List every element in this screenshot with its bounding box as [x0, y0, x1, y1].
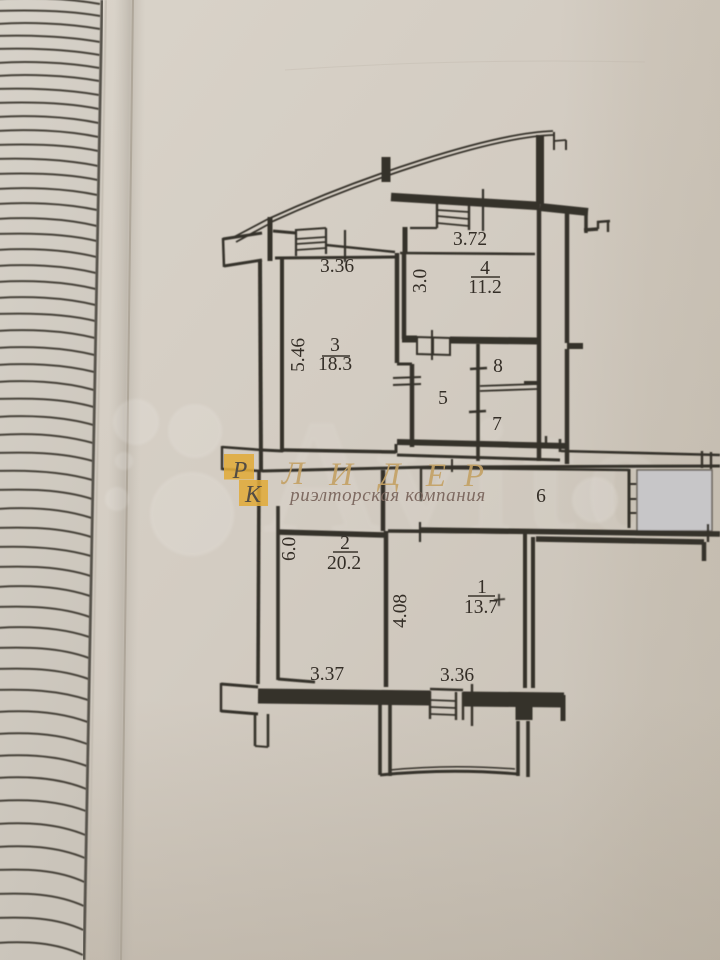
svg-text:3.0: 3.0 [410, 269, 431, 294]
svg-text:18.3: 18.3 [318, 354, 352, 375]
svg-text:Р: Р [232, 458, 248, 484]
svg-text:20.2: 20.2 [327, 553, 361, 574]
svg-text:К: К [244, 482, 263, 508]
svg-text:риэлторская компания: риэлторская компания [288, 485, 486, 506]
svg-text:3: 3 [330, 335, 340, 356]
svg-text:5.46: 5.46 [288, 337, 310, 372]
svg-text:13.7: 13.7 [464, 597, 498, 618]
svg-text:6.0: 6.0 [279, 537, 300, 562]
svg-text:3.72: 3.72 [453, 229, 487, 250]
svg-text:3.36: 3.36 [320, 256, 354, 277]
svg-text:3.37: 3.37 [310, 664, 344, 685]
svg-text:4.08: 4.08 [390, 594, 412, 628]
svg-text:4: 4 [480, 258, 490, 279]
svg-text:8: 8 [493, 356, 503, 377]
svg-text:7: 7 [492, 414, 502, 435]
svg-text:3.36: 3.36 [440, 665, 474, 686]
svg-text:6: 6 [536, 486, 546, 507]
svg-text:5: 5 [438, 388, 448, 409]
svg-text:2: 2 [340, 533, 350, 554]
svg-text:1: 1 [477, 577, 487, 598]
svg-text:11.2: 11.2 [468, 277, 501, 298]
